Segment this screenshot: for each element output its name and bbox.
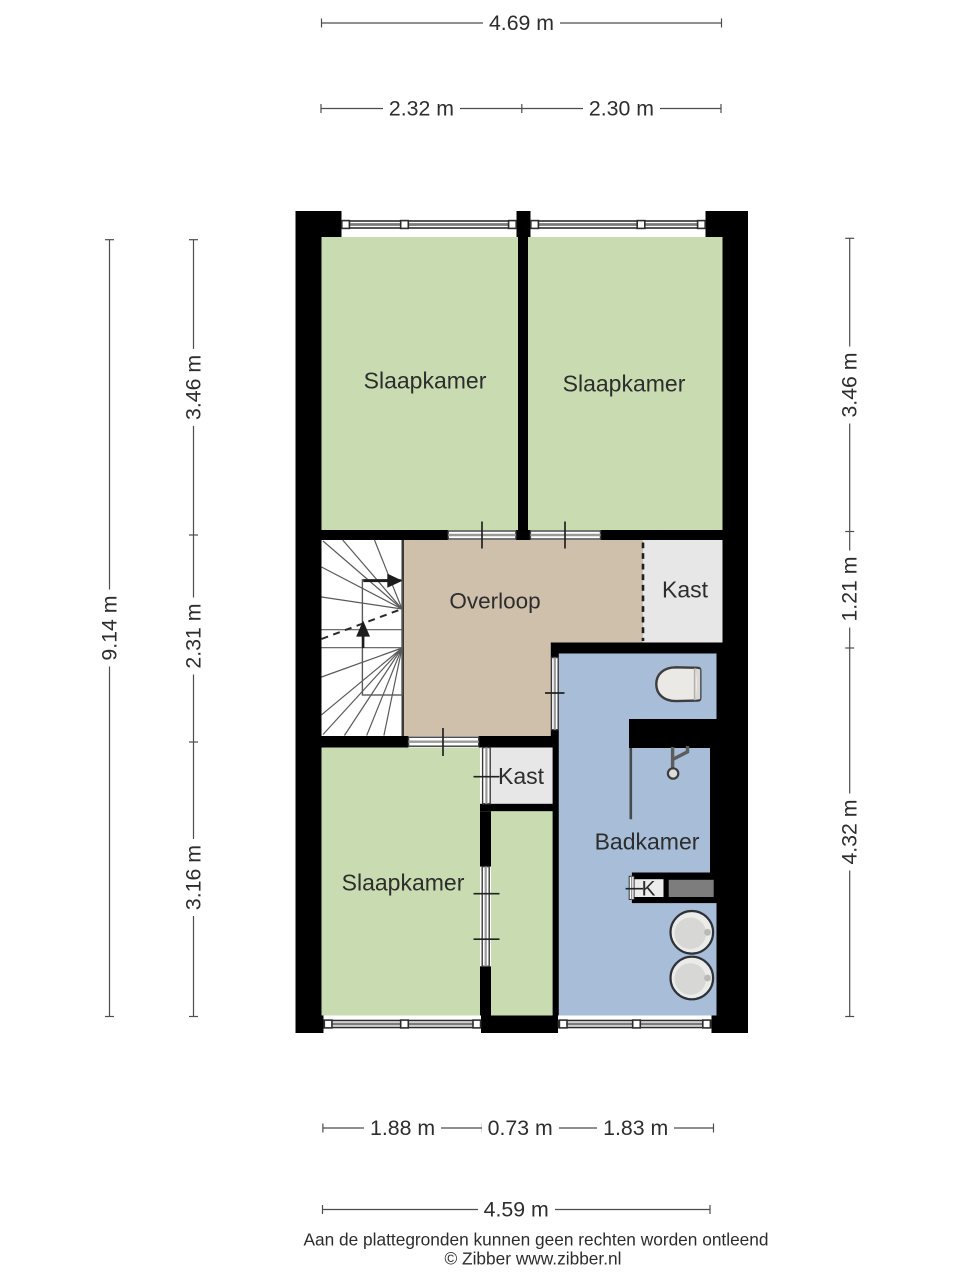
svg-text:3.16 m: 3.16 m [182,845,206,910]
svg-text:0.73 m: 0.73 m [488,1116,553,1140]
svg-text:Kast: Kast [662,577,709,603]
svg-text:4.59 m: 4.59 m [484,1198,549,1222]
svg-text:Badkamer: Badkamer [595,829,700,855]
svg-text:Slaapkamer: Slaapkamer [563,371,686,397]
svg-text:Slaapkamer: Slaapkamer [342,870,465,896]
svg-text:9.14 m: 9.14 m [98,595,122,660]
svg-text:4.69 m: 4.69 m [489,11,554,35]
svg-text:4.32 m: 4.32 m [838,799,862,864]
svg-text:1.88 m: 1.88 m [370,1116,435,1140]
svg-text:Aan de plattegronden kunnen ge: Aan de plattegronden kunnen geen rechten… [303,1230,768,1250]
svg-text:3.46 m: 3.46 m [182,355,206,420]
svg-text:© Zibber www.zibber.nl: © Zibber www.zibber.nl [445,1249,622,1269]
svg-text:Slaapkamer: Slaapkamer [364,368,487,394]
svg-text:K: K [641,878,655,901]
svg-text:2.32 m: 2.32 m [389,97,454,121]
svg-text:Kast: Kast [498,763,545,789]
svg-text:Overloop: Overloop [449,589,540,614]
svg-text:3.46 m: 3.46 m [838,352,862,417]
svg-text:1.83 m: 1.83 m [603,1116,668,1140]
svg-text:2.31 m: 2.31 m [182,603,206,668]
svg-text:2.30 m: 2.30 m [589,97,654,121]
svg-text:1.21 m: 1.21 m [838,556,862,621]
